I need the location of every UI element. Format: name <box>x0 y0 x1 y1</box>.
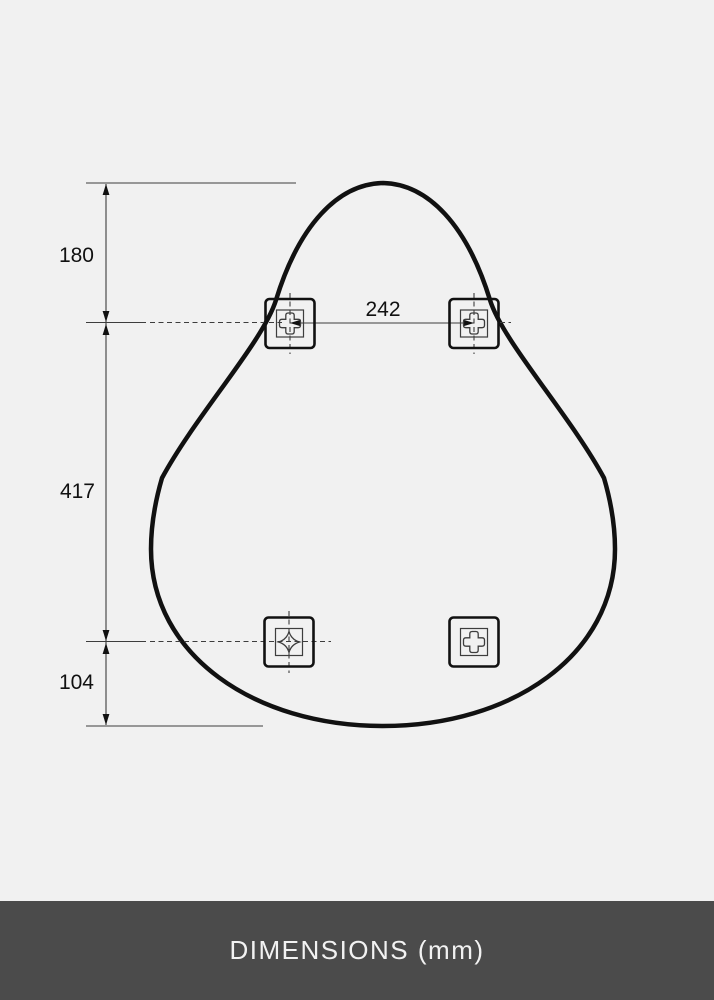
footer-bar: DIMENSIONS (mm) <box>0 901 714 1000</box>
bracket-inner-square <box>461 629 488 656</box>
center-lines <box>150 293 511 673</box>
bracket-bottom-right <box>450 618 499 667</box>
dimension-label-180: 180 <box>59 244 94 267</box>
dimension-label-104: 104 <box>59 671 94 694</box>
arrow-up-icon <box>103 184 110 195</box>
arrow-down-icon <box>103 630 110 641</box>
bracket-outer-square <box>450 618 499 667</box>
arrow-up-icon <box>103 324 110 335</box>
mirror-outline <box>151 183 615 726</box>
mirror-dimension-page: 180 417 104 242 DIMENSIONS (mm) <box>0 0 714 1000</box>
vertical-dimension-line <box>103 184 110 725</box>
arrow-up-icon <box>103 643 110 654</box>
arrow-down-icon <box>103 714 110 725</box>
clover-screw-slot-icon <box>464 632 485 653</box>
dimension-label-242: 242 <box>365 298 400 321</box>
arrow-right-icon <box>463 320 474 327</box>
arrow-left-icon <box>290 320 301 327</box>
dimension-label-417: 417 <box>60 480 95 503</box>
footer-title: DIMENSIONS (mm) <box>229 935 484 966</box>
mirror-dimension-diagram: 180 417 104 242 <box>0 0 714 901</box>
arrow-down-icon <box>103 311 110 322</box>
